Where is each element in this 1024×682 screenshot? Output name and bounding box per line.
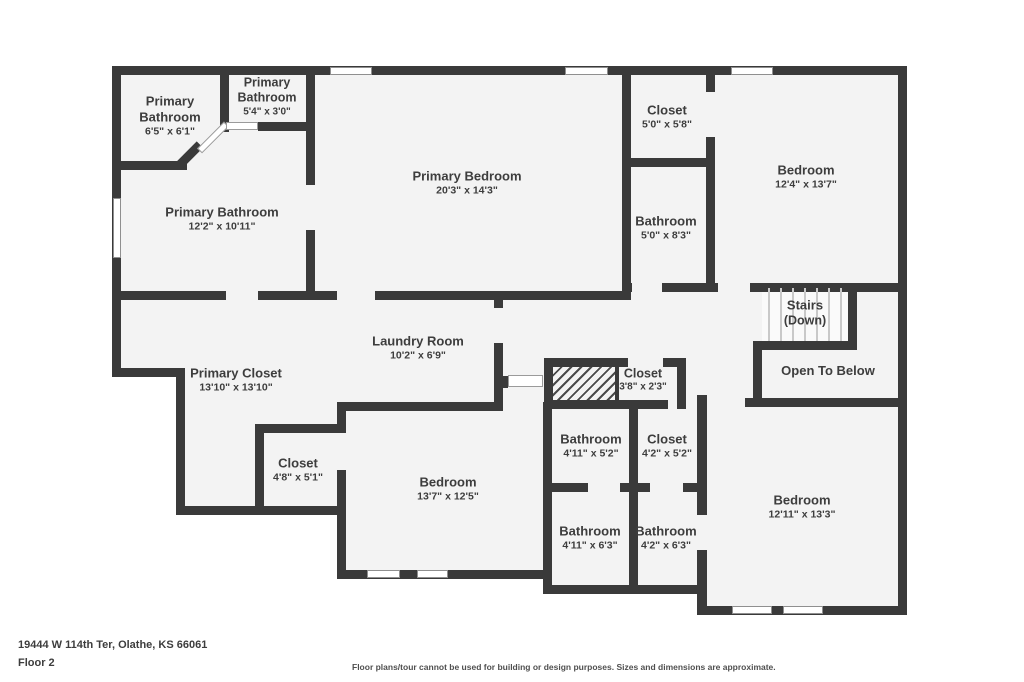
floor-area: [544, 400, 707, 594]
room-name: Closet: [248, 456, 348, 472]
door-opening: [226, 122, 258, 130]
room-dims: 12'2" x 10'11": [122, 221, 322, 234]
wall: [255, 424, 346, 433]
wall: [498, 376, 508, 388]
room-label-closet-2: Closet 3'8" x 2'3": [593, 366, 693, 393]
room-label-stairs: Stairs (Down): [760, 297, 850, 328]
room-dims: 12'11" x 13'3": [732, 509, 872, 522]
room-name: Closet: [617, 432, 717, 448]
disclaimer-text: Floor plans/tour cannot be used for buil…: [352, 662, 776, 672]
wall: [337, 402, 503, 411]
floor-plan-page: Primary Bathroom 6'5" x 6'1" Primary Bat…: [0, 0, 1024, 682]
room-name: Laundry Room: [338, 334, 498, 350]
room-name: Bedroom: [378, 475, 518, 491]
wall: [375, 291, 631, 300]
window: [367, 570, 400, 578]
wall: [258, 122, 315, 131]
wall: [620, 483, 650, 492]
room-dims: 10'2" x 6'9": [338, 350, 498, 363]
wall: [753, 341, 857, 350]
wall: [544, 400, 668, 409]
room-dims: (Down): [760, 313, 850, 328]
room-dims: 13'10" x 13'10": [141, 382, 331, 395]
room-dims: 13'7" x 12'5": [378, 491, 518, 504]
door-opening: [508, 375, 543, 387]
window: [783, 606, 823, 614]
window: [565, 67, 608, 75]
room-dims: 6'5" x 6'1": [124, 125, 216, 138]
room-name: Bedroom: [736, 163, 876, 179]
wall: [898, 66, 907, 615]
room-name: Stairs: [760, 297, 850, 313]
window: [732, 606, 772, 614]
wall: [622, 158, 715, 167]
room-name: Primary Bathroom: [224, 76, 310, 107]
room-name: Bedroom: [732, 493, 872, 509]
room-label-primary-bathroom-2: Primary Bathroom 5'4" x 3'0": [224, 76, 310, 119]
wall: [112, 291, 226, 300]
room-label-bedroom-3: Bedroom 12'11" x 13'3": [732, 493, 872, 522]
room-label-bedroom-2: Bedroom 13'7" x 12'5": [378, 475, 518, 504]
window: [113, 198, 121, 258]
room-label-closet-3: Closet 4'8" x 5'1": [248, 456, 348, 485]
wall: [494, 291, 503, 308]
room-label-bathroom-4: Bathroom 4'2" x 6'3": [611, 524, 721, 553]
wall: [683, 483, 707, 492]
room-dims: 20'3" x 14'3": [357, 185, 577, 198]
room-label-bedroom-1: Bedroom 12'4" x 13'7": [736, 163, 876, 192]
room-name: Primary Bathroom: [124, 94, 216, 126]
room-label-primary-bathroom-3: Primary Bathroom 12'2" x 10'11": [122, 205, 322, 234]
wall: [112, 66, 907, 75]
room-dims: 5'4" x 3'0": [224, 106, 310, 118]
room-dims: 3'8" x 2'3": [593, 382, 693, 394]
floor-area: [622, 66, 715, 292]
wall: [306, 230, 315, 300]
room-name: Open To Below: [748, 363, 908, 379]
wall: [258, 291, 337, 300]
room-dims: 4'2" x 5'2": [617, 448, 717, 461]
wall: [629, 400, 638, 594]
room-label-laundry-room: Laundry Room 10'2" x 6'9": [338, 334, 498, 363]
address-label: 19444 W 114th Ter, Olathe, KS 66061: [18, 639, 207, 651]
wall: [544, 483, 588, 492]
wall: [544, 585, 707, 594]
room-label-primary-closet: Primary Closet 13'10" x 13'10": [141, 366, 331, 395]
room-dims: 5'0" x 8'3": [611, 230, 721, 243]
room-name: Closet: [593, 366, 693, 381]
room-label-primary-bathroom-1: Primary Bathroom 6'5" x 6'1": [124, 94, 216, 139]
room-name: Primary Closet: [141, 366, 331, 382]
room-dims: 4'2" x 6'3": [611, 540, 721, 553]
window: [417, 570, 448, 578]
room-dims: 4'8" x 5'1": [248, 472, 348, 485]
room-name: Bathroom: [611, 524, 721, 540]
wall: [112, 161, 187, 170]
room-name: Primary Bedroom: [357, 169, 577, 185]
wall: [706, 66, 715, 92]
wall: [745, 398, 907, 407]
room-dims: 5'0" x 5'8": [622, 119, 712, 132]
wall: [337, 470, 346, 579]
window: [731, 67, 773, 75]
room-label-primary-bedroom: Primary Bedroom 20'3" x 14'3": [357, 169, 577, 198]
floor-label: Floor 2: [18, 657, 55, 669]
wall: [622, 66, 631, 292]
room-name: Bathroom: [611, 214, 721, 230]
window: [330, 67, 372, 75]
room-dims: 12'4" x 13'7": [736, 179, 876, 192]
room-label-bathroom-1: Bathroom 5'0" x 8'3": [611, 214, 721, 243]
room-label-closet-1: Closet 5'0" x 5'8": [622, 103, 712, 132]
room-name: Closet: [622, 103, 712, 119]
room-label-closet-4: Closet 4'2" x 5'2": [617, 432, 717, 461]
room-name: Primary Bathroom: [122, 205, 322, 221]
room-label-open-to-below: Open To Below: [748, 363, 908, 379]
